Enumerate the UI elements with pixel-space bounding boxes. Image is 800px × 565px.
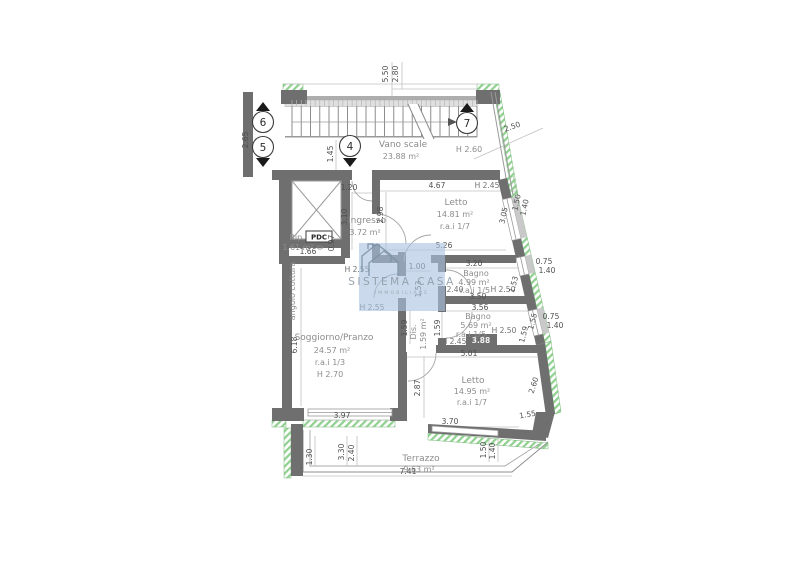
dimension-label: 1.50 <box>479 441 488 458</box>
dimension-label: 2.50 <box>503 120 522 134</box>
room-area-bagno2: 5.69 m² <box>460 321 491 330</box>
room-label-soggiorno: Soggiorno/Pranzo <box>295 333 374 343</box>
dimension-label: 2.60 <box>527 376 541 395</box>
room-rai-letto1: r.a.i 1/7 <box>440 222 470 231</box>
room-label-letto1: Letto <box>445 198 468 208</box>
dimension-label: 3.20 <box>466 259 483 268</box>
room-area-letto2: 14.95 m² <box>454 387 490 396</box>
dimension-label: 0.75 <box>543 312 560 321</box>
room-rai-letto2: r.a.i 1/7 <box>457 398 487 407</box>
dimension-label: 3.30 <box>337 443 346 460</box>
dimension-label: 3.10 <box>340 208 349 225</box>
dimension-label: 1.40 <box>488 442 497 459</box>
room-label-vano-scale: Vano scale <box>379 140 428 150</box>
floor-plan-page: 6 5 4 7 <box>0 0 800 565</box>
dimension-label: 1.66 <box>300 247 317 256</box>
dimension-label: 4.67 <box>429 181 446 190</box>
dimension-label: 2.87 <box>413 379 422 396</box>
dimension-label: 1.45 <box>326 145 335 162</box>
dimension-label: 5.50 <box>381 65 390 82</box>
dimension-label: 1.59 <box>517 325 530 344</box>
room-label-rip: Rip. <box>289 233 304 242</box>
dimension-label: 2.80 <box>391 65 400 82</box>
room-area-soggiorno: 24.57 m² <box>314 346 350 355</box>
dimension-label: 2.98 <box>376 206 385 223</box>
stair-arrow-down-icon <box>256 158 270 167</box>
dimension-label: 2.65 <box>241 131 250 148</box>
room-area-ingresso: 3.72 m² <box>349 228 380 237</box>
dimension-label: 1.59 <box>433 319 442 336</box>
dimension-label: H 2.45 <box>442 337 467 346</box>
stair-marker-5: 5 <box>260 142 267 154</box>
dimension-label: 1.20 <box>341 183 358 192</box>
room-label-dis: Dis. <box>409 324 418 339</box>
watermark-title: SISTEMA CASA <box>348 276 456 288</box>
stair-marker-6: 6 <box>260 117 267 129</box>
room-label-letto2: Letto <box>462 376 485 386</box>
pdc-label: PDC <box>311 234 327 242</box>
dimension-label: H 2.45 <box>475 181 500 190</box>
stair-direction-arrow-icon <box>448 118 457 126</box>
room-label-terrazzo: Terrazzo <box>401 454 440 464</box>
room-label-bagno2: Bagno <box>465 312 491 321</box>
dimension-label: 1.53 <box>507 275 520 294</box>
room-rai-soggiorno: r.a.i 1/3 <box>315 358 345 367</box>
elevator-cabin <box>292 181 341 239</box>
dimension-label: 0.75 <box>536 257 553 266</box>
dimension-label: 1.59 <box>400 319 409 336</box>
dimension-label: H 2.50 <box>492 326 517 335</box>
dimension-label: 3.50 <box>470 292 487 301</box>
dimension-label: 6.18 <box>290 336 299 353</box>
dimension-label: 1.40 <box>539 266 556 275</box>
dimension-label: 1.55 <box>519 409 537 421</box>
stair-treads <box>292 100 477 137</box>
dimension-label: 2.40 <box>347 444 356 461</box>
room-label-angolo-cottura: angolo cottura <box>288 262 297 321</box>
room-area-letto1: 14.81 m² <box>437 210 473 219</box>
dimension-label: 0.97 <box>327 234 336 251</box>
room-area-dis: 1.59 m² <box>419 318 428 349</box>
floor-plan-canvas: 6 5 4 7 <box>0 0 800 565</box>
watermark-subtitle: IMMOBILIARE <box>375 290 430 296</box>
stair-arrow-down-icon <box>343 158 357 167</box>
room-height-vano-scale: H 2.60 <box>456 145 482 154</box>
dimension-label: 1.40 <box>547 321 564 330</box>
dimension-label: 3.97 <box>334 411 351 420</box>
dimension-label: 3.56 <box>472 303 489 312</box>
room-area-vano-scale: 23.88 m² <box>383 152 419 161</box>
room-label-bagno1: Bagno <box>463 269 489 278</box>
room-height-soggiorno: H 2.70 <box>317 370 343 379</box>
watermark: SISTEMA CASA IMMOBILIARE <box>348 243 456 311</box>
dimension-label: 7.41 <box>400 467 417 476</box>
dimension-label: 3.88 <box>472 336 491 345</box>
stair-arrow-up-icon <box>256 102 270 111</box>
dimension-label: 1.30 <box>305 448 314 465</box>
dimension-label: 5.01 <box>461 349 478 358</box>
stair-marker-7: 7 <box>464 118 471 130</box>
stair-level-markers: 6 5 4 7 <box>253 102 478 167</box>
stair-marker-4: 4 <box>347 141 354 153</box>
dimension-label: 3.70 <box>442 417 459 426</box>
